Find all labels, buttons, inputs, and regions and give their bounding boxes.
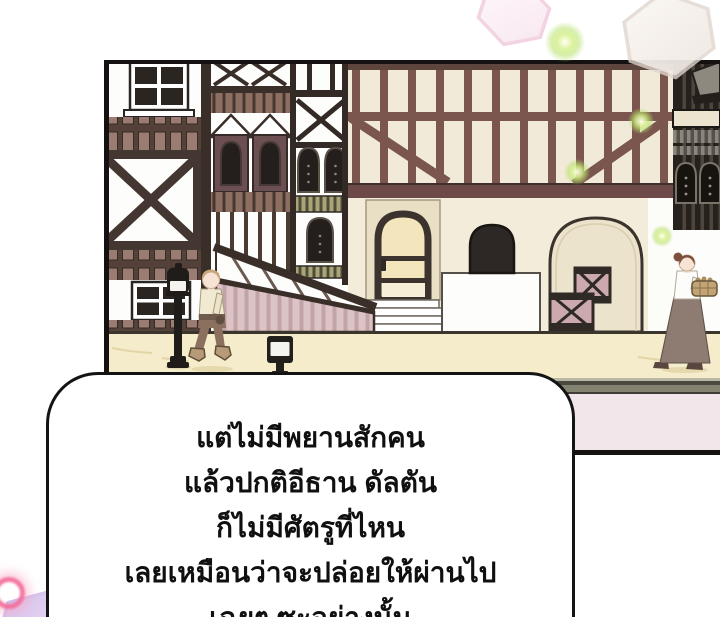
dialogue-text: แต่ไม่มีพยานสักคน แล้วปกติอีธาน ดัลตัน ก…: [49, 375, 572, 617]
pink-hexagon-crystal: [467, 0, 561, 58]
entrance-door: [366, 200, 440, 300]
pink-ring-sparkle: [0, 577, 25, 609]
dialogue-line: เลยเหมือนว่าจะปล่อยให้ผ่านไป: [49, 550, 572, 595]
main-building: [348, 60, 676, 332]
door-handle: [381, 259, 386, 271]
hair-bun: [674, 253, 683, 262]
left-building-upper-window: [124, 62, 194, 117]
arched-window: [470, 225, 514, 273]
jetty-beam: [348, 185, 673, 198]
parapet-wall: [442, 273, 540, 332]
dialogue-line: แล้วปกติอีธาน ดัลตัน: [49, 460, 572, 505]
dialogue-line: เฉยๆ ซะอย่างนั้น: [49, 595, 572, 617]
timber-panel-row: [104, 117, 201, 150]
dialogue-line: แต่ไม่มีพยานสักคน: [49, 415, 572, 460]
webtoon-page: แต่ไม่มีพยานสักคน แล้วปกติอีธาน ดัลตัน ก…: [0, 0, 720, 617]
green-glow-sparkle: [545, 22, 585, 62]
speech-bubble: แต่ไม่มีพยานสักคน แล้วปกติอีธาน ดัลตัน ก…: [46, 372, 575, 617]
dialogue-line: ก็ไม่มีศัตรูที่ไหน: [49, 505, 572, 550]
